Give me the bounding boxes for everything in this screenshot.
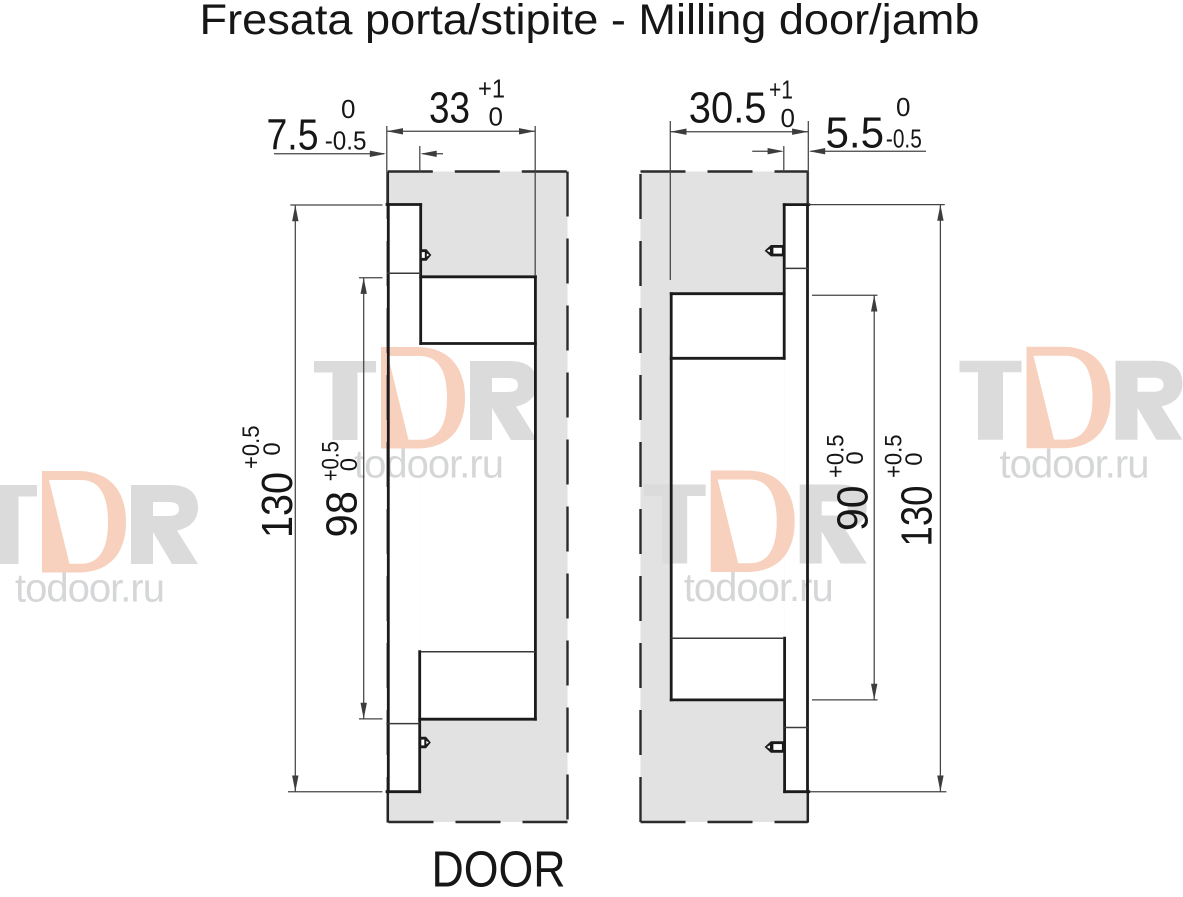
- svg-text:DOOR: DOOR: [432, 840, 566, 897]
- svg-text:7.5: 7.5: [267, 111, 319, 160]
- svg-text:98: 98: [318, 491, 367, 538]
- svg-text:-0.5: -0.5: [325, 126, 367, 156]
- svg-text:33: 33: [429, 84, 470, 133]
- svg-text:5.5: 5.5: [826, 109, 885, 158]
- svg-text:-0.5: -0.5: [886, 124, 922, 154]
- svg-text:+1: +1: [769, 75, 793, 105]
- svg-text:130: 130: [893, 486, 942, 547]
- svg-text:0: 0: [489, 102, 503, 132]
- svg-text:0: 0: [901, 452, 928, 465]
- svg-text:130: 130: [253, 472, 302, 538]
- svg-text:0: 0: [259, 442, 286, 455]
- svg-text:30.5: 30.5: [689, 84, 767, 133]
- svg-text:90: 90: [828, 486, 877, 532]
- svg-text:Fresata porta/stipite - Millin: Fresata porta/stipite - Milling door/jam…: [200, 0, 980, 44]
- svg-text:0: 0: [896, 92, 910, 122]
- svg-text:0: 0: [781, 103, 795, 133]
- svg-text:0: 0: [842, 451, 869, 464]
- svg-text:0: 0: [341, 94, 355, 124]
- svg-text:+1: +1: [478, 74, 505, 104]
- svg-text:0: 0: [336, 458, 363, 471]
